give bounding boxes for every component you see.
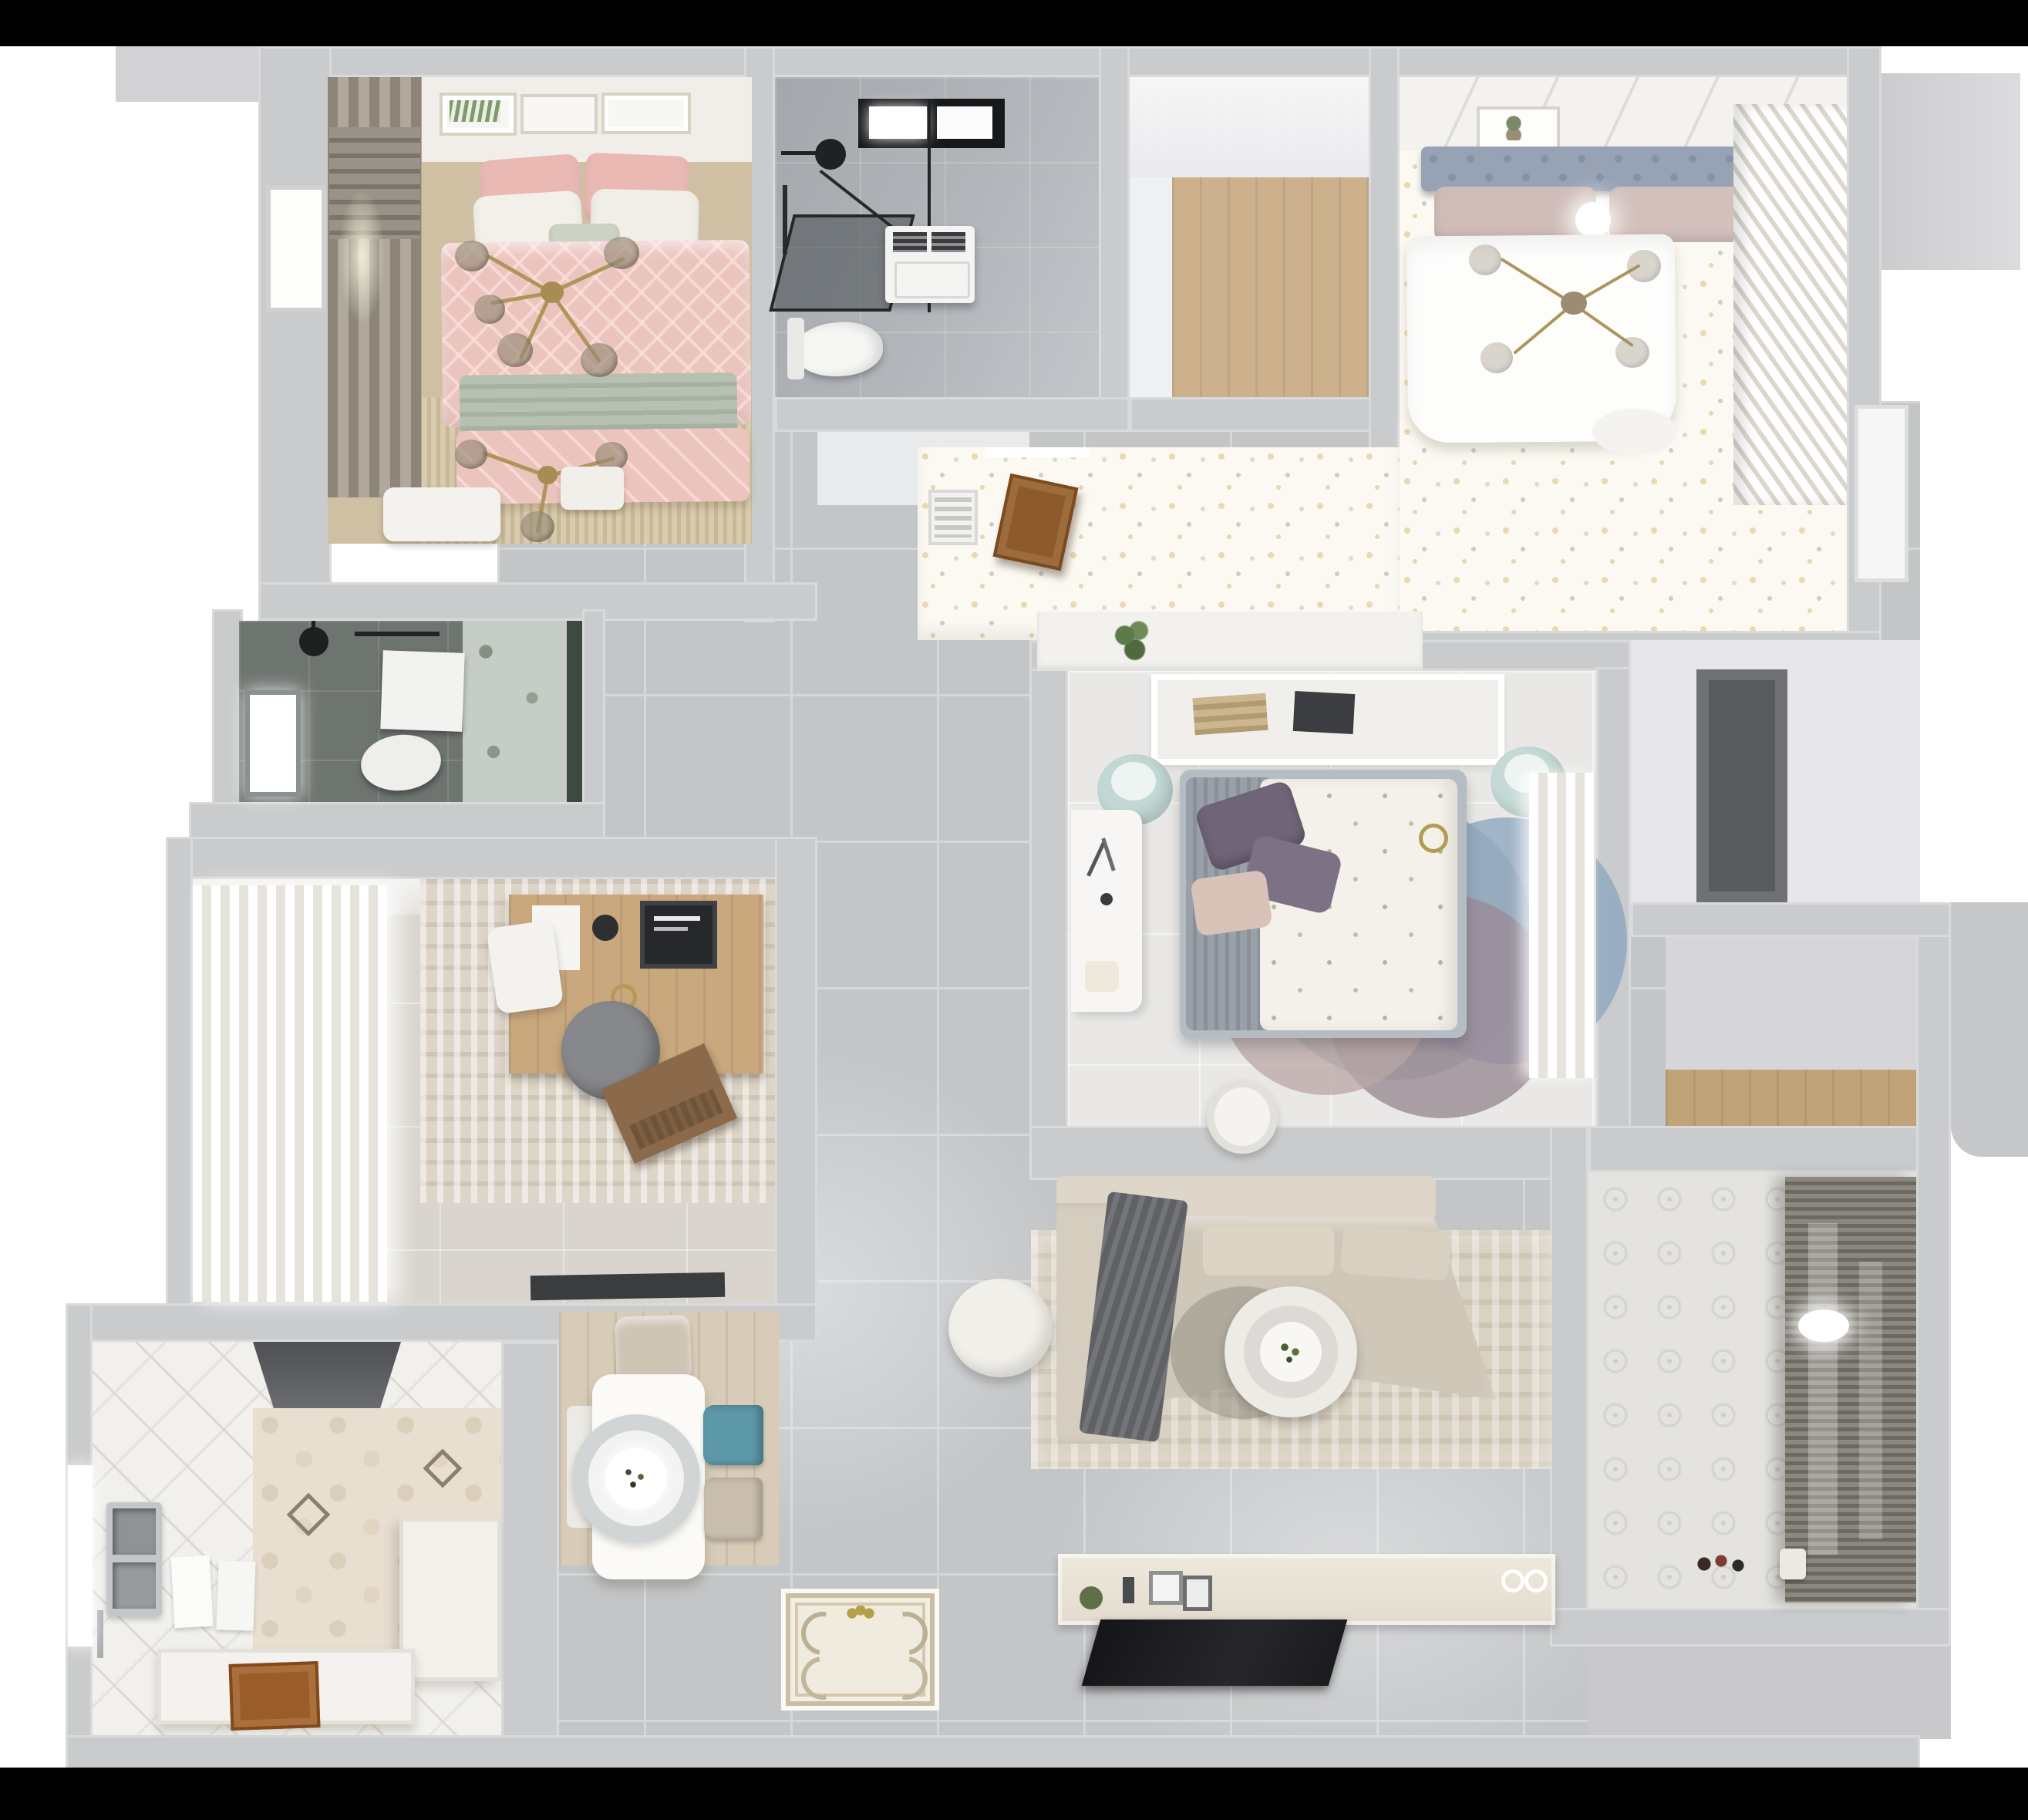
wall-balcony-south xyxy=(1550,1608,1951,1646)
kids-desk xyxy=(1071,810,1142,1012)
closet-ceiling-band xyxy=(1130,77,1369,177)
pillow-blush xyxy=(1434,187,1596,242)
mat-scroll-corner xyxy=(876,1648,936,1708)
cutting-board xyxy=(171,1555,214,1628)
desk-lamp xyxy=(592,915,618,941)
console-frame xyxy=(1149,1571,1183,1605)
kitchen-window-glow xyxy=(68,1465,93,1646)
dark-book xyxy=(1293,691,1356,734)
wall-art-frame-script xyxy=(520,94,598,134)
pillow-blush-kids xyxy=(1190,870,1272,937)
wall-paper-sheet xyxy=(380,650,464,732)
balcony-ceiling-light xyxy=(1798,1309,1849,1342)
bedroom-window-slot xyxy=(266,185,326,312)
pendant-plant-sprig xyxy=(621,1463,652,1494)
wall-bath-east xyxy=(1099,46,1130,432)
ceiling-ball-light xyxy=(1575,202,1611,238)
kids-shelf-wall xyxy=(1037,612,1423,671)
dining-chair-teal xyxy=(703,1405,763,1465)
shower-arm xyxy=(781,151,820,155)
skylight-glass xyxy=(937,106,992,139)
wall-study-east xyxy=(775,837,817,1342)
flat-tv xyxy=(1082,1619,1348,1686)
dark-doorway xyxy=(1696,669,1787,902)
tv-console xyxy=(1058,1554,1555,1625)
console-green-disc xyxy=(1080,1586,1103,1609)
floor-toy-basket xyxy=(1780,1549,1806,1579)
sage-blanket-band xyxy=(460,372,738,437)
bedroom-kids xyxy=(1068,671,1596,1126)
floorplan-render xyxy=(0,0,2028,1820)
console-knob xyxy=(1501,1569,1524,1592)
bathroom-main xyxy=(775,77,1099,397)
wall-nook-top xyxy=(1631,902,1951,937)
master-picture-plant xyxy=(1504,114,1524,140)
bedside-stool xyxy=(561,467,624,510)
wall-kids-west xyxy=(1029,640,1068,1180)
console-knob xyxy=(1524,1569,1548,1592)
wall-balcony-west xyxy=(1550,1126,1588,1619)
exterior-shadow-right-top xyxy=(1881,73,2020,270)
side-table-round xyxy=(1207,1080,1278,1154)
hex-motif xyxy=(287,1493,331,1537)
shelf-plant xyxy=(1113,616,1153,664)
balcony xyxy=(1588,1172,1916,1608)
shower-rail-hardware xyxy=(355,632,440,636)
hex-motif xyxy=(423,1449,463,1488)
coffee-table-plant xyxy=(1275,1336,1306,1367)
bedroom-secondary xyxy=(328,77,752,544)
lamp-stem xyxy=(312,621,315,633)
wall-bath-south xyxy=(775,397,1130,432)
range-hood xyxy=(253,1342,401,1408)
right-hall-zone xyxy=(1631,640,1920,902)
wall-outer-bottom xyxy=(66,1735,1920,1770)
louver-closet xyxy=(1733,104,1847,505)
kids-sheer-curtains xyxy=(1529,773,1596,1078)
sofa-cushion xyxy=(1340,1225,1451,1281)
wall-kitchen-east xyxy=(501,1342,559,1770)
wall-art-frame-botanical xyxy=(601,93,691,134)
kitchen-open-door xyxy=(229,1661,321,1731)
gold-decor-ring xyxy=(1419,824,1448,853)
desk-monitor xyxy=(640,901,717,969)
console-frame xyxy=(1183,1576,1212,1611)
shower-head xyxy=(815,139,846,170)
letterbox-top xyxy=(0,0,2028,46)
balcony-slat-blinds xyxy=(1785,1177,1916,1603)
ac-vent-grille xyxy=(928,490,978,545)
bathroom-dark xyxy=(239,621,582,802)
kitchen-faucet xyxy=(97,1610,103,1658)
bath-window xyxy=(245,690,301,797)
bedroom-master xyxy=(1400,77,1847,631)
mat-scroll-corner xyxy=(793,1648,853,1708)
wall-bedroom-south xyxy=(258,582,817,621)
storage-nook xyxy=(1666,937,1916,1126)
washing-machine xyxy=(885,226,975,303)
duvet-foot-fold xyxy=(1592,409,1677,455)
white-pouf xyxy=(948,1279,1053,1377)
wall-balcony-north xyxy=(1588,1126,1951,1172)
exterior-shadow-topleft xyxy=(116,46,266,102)
closet-wood-floor xyxy=(1172,177,1369,397)
study-door-mat xyxy=(531,1272,726,1300)
wall-art-frame-leaf-fill xyxy=(450,100,500,122)
study-white-chair xyxy=(487,920,564,1015)
floral-accent-wall xyxy=(463,621,567,802)
console-bottle xyxy=(1123,1577,1134,1603)
mat-gold-clover xyxy=(846,1606,875,1621)
toilet-tank xyxy=(787,318,804,379)
open-wood-door xyxy=(993,474,1079,571)
wall-study-west xyxy=(166,837,193,1342)
wall-study-north xyxy=(166,837,817,879)
tufted-headboard xyxy=(1421,147,1787,191)
wall-balcony-east xyxy=(1916,902,1951,1619)
door-frame-head xyxy=(985,447,1090,457)
sofa-cushion xyxy=(1203,1226,1334,1276)
double-sink xyxy=(106,1502,162,1616)
nook-wood-shelf xyxy=(1666,1070,1916,1126)
master-exterior-door-slot xyxy=(1855,405,1908,582)
exterior-shadow-right-mid xyxy=(1951,902,2028,1157)
toilet-dark-bath xyxy=(359,731,444,794)
dining-chair-beige xyxy=(704,1478,763,1539)
curtain-window-glow xyxy=(339,189,385,324)
kitchen xyxy=(93,1342,501,1735)
mat-scroll-corner xyxy=(793,1603,853,1663)
skylight-glass xyxy=(869,106,927,139)
wall-west-bedroom xyxy=(258,46,332,621)
kids-bed xyxy=(1180,770,1467,1038)
wall-closet-south xyxy=(1130,397,1400,432)
green-accent-stripe xyxy=(567,621,582,802)
headboard-shelf xyxy=(1151,674,1504,765)
cutting-board xyxy=(216,1560,255,1631)
exterior-shadow-below-balcony xyxy=(1588,1646,1951,1739)
dining-chair-head xyxy=(615,1314,692,1378)
entry-door-mat xyxy=(781,1589,939,1710)
study xyxy=(193,879,775,1303)
mat-scroll-corner xyxy=(876,1603,936,1663)
foot-bench xyxy=(383,487,500,541)
books-stack xyxy=(1192,693,1268,736)
letterbox-bottom xyxy=(0,1768,2028,1820)
wall-outer-top xyxy=(262,46,1881,77)
study-sheer-curtains xyxy=(193,885,387,1302)
closet-hall xyxy=(1130,77,1369,397)
floor-toys xyxy=(1695,1550,1764,1576)
